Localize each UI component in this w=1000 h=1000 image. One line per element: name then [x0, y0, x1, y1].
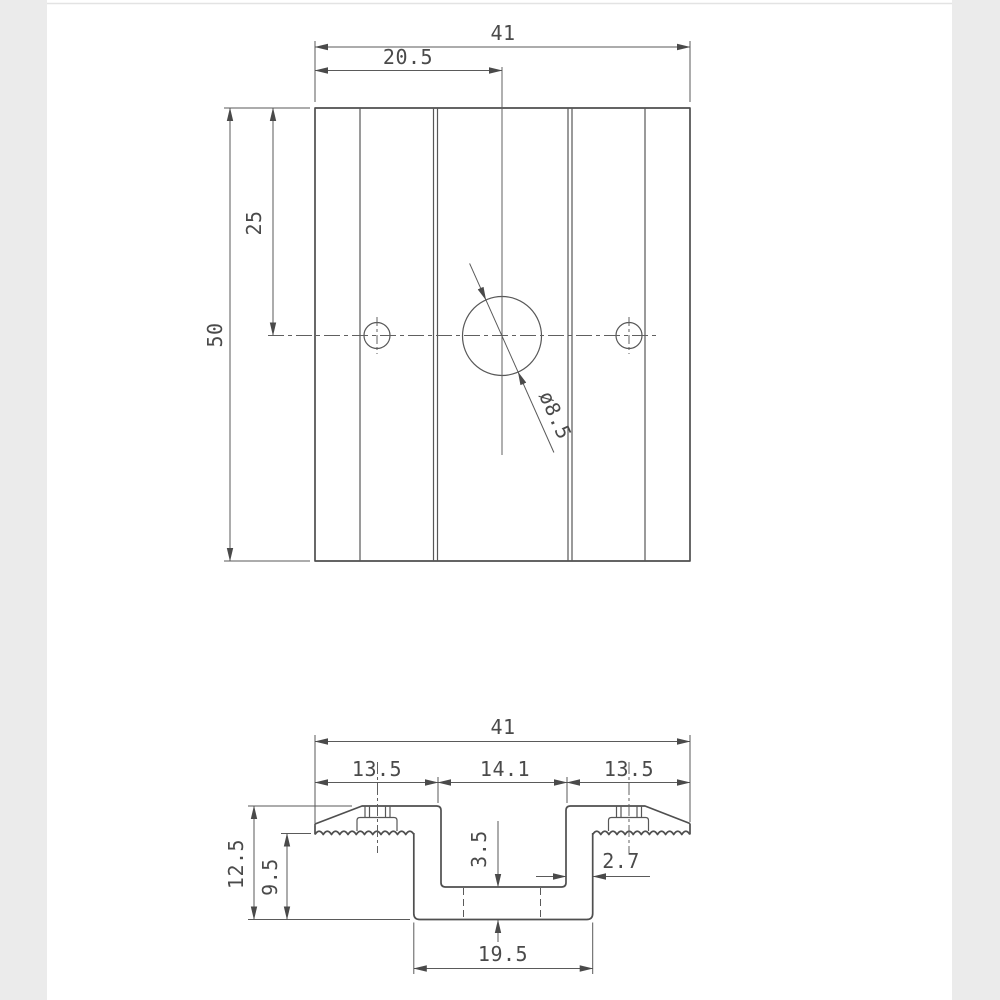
dim-label-channel-width: 14.1: [480, 757, 530, 781]
right-serration: [593, 831, 690, 834]
technical-drawing: 41 20.5 50 25 ø8.5: [0, 0, 1000, 1000]
dim-plan-hole-center: 25: [242, 108, 273, 336]
left-serration: [315, 831, 414, 834]
dim-plan-overall-length: 50: [203, 108, 310, 561]
dim-label-floor-thickness: 3.5: [467, 830, 491, 868]
dim-label-hole-offset: 20.5: [383, 45, 433, 69]
dim-label-profile-width: 41: [490, 715, 515, 739]
extension-lines: [224, 108, 310, 561]
left-margin: [0, 0, 47, 1000]
leader-upper: [470, 263, 486, 300]
hidden-hole-lines: [464, 888, 541, 919]
profile-view: 41 13.5 14.1 13.5 12.5 9.5 3.5: [224, 715, 690, 974]
dim-label-left-flange: 13.5: [352, 757, 402, 781]
dim-label-plan-width: 41: [490, 21, 515, 45]
dim-label-hole-diameter: ø8.5: [534, 387, 576, 443]
dim-label-length: 50: [203, 322, 227, 347]
dim-label-hole-center: 25: [242, 210, 266, 235]
dim-label-base-width: 19.5: [478, 942, 528, 966]
dim-label-wall-thickness: 2.7: [602, 849, 640, 873]
dim-label-right-flange: 13.5: [604, 757, 654, 781]
dim-label-body-height: 9.5: [258, 858, 282, 896]
plan-view: 41 20.5 50 25 ø8.5: [203, 21, 690, 561]
profile-upper-outline: [315, 806, 690, 887]
drawing-canvas: 41 20.5 50 25 ø8.5: [0, 0, 1000, 1000]
dim-floor-thickness: 3.5: [467, 821, 498, 942]
dim-label-overall-height: 12.5: [224, 839, 248, 889]
dim-plan-hole-offset: 20.5: [315, 45, 502, 71]
dim-flanges-and-channel: 13.5 14.1 13.5: [315, 757, 690, 803]
dim-plan-hole-diameter: ø8.5: [470, 263, 577, 452]
dim-base-width: 19.5: [414, 923, 593, 975]
right-margin: [952, 0, 1000, 1000]
